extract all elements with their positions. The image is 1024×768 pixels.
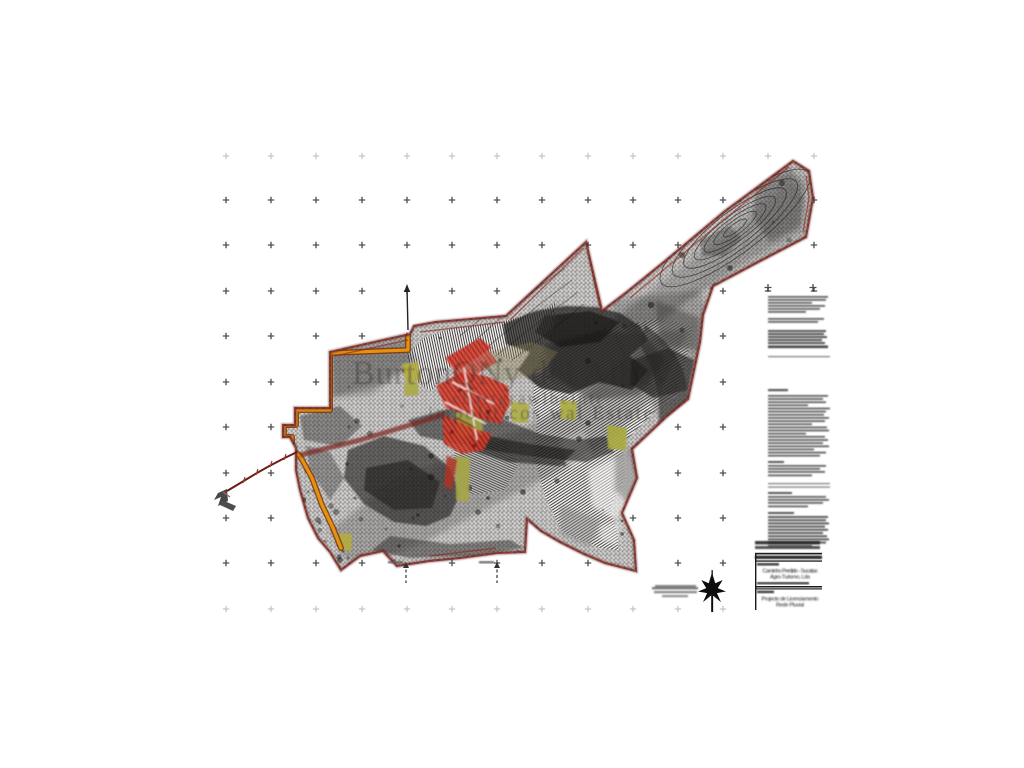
svg-text:BurtonQNy del Albev: BurtonQNy del Albev bbox=[352, 355, 670, 392]
svg-text:Agro-Turismo, Lda: Agro-Turismo, Lda bbox=[770, 575, 811, 581]
svg-text:Rede Pluvial: Rede Pluvial bbox=[776, 603, 804, 609]
